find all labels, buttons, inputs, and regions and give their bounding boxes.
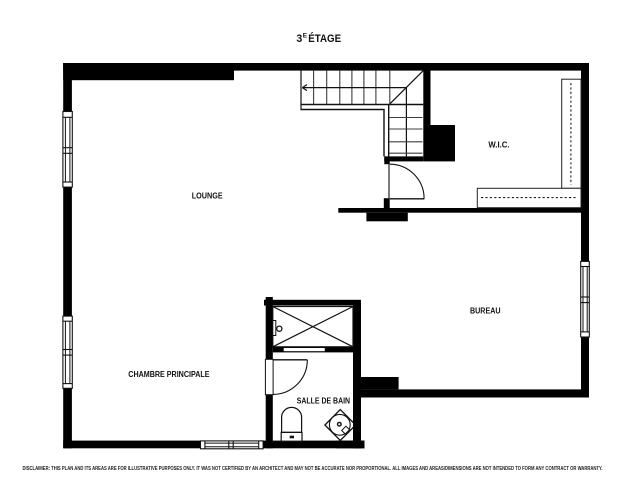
svg-text:W.I.C.: W.I.C.: [488, 141, 509, 150]
svg-text:LOUNGE: LOUNGE: [192, 191, 224, 200]
svg-text:3: 3: [296, 33, 302, 45]
svg-text:ÉTAGE: ÉTAGE: [308, 32, 341, 45]
svg-text:BUREAU: BUREAU: [470, 306, 501, 315]
svg-text:DISCLAIMER: THIS PLAN AND ITS: DISCLAIMER: THIS PLAN AND ITS AREAS ARE …: [23, 466, 603, 472]
svg-text:CHAMBRE PRINCIPALE: CHAMBRE PRINCIPALE: [128, 370, 210, 379]
svg-text:E: E: [303, 32, 308, 39]
svg-text:SALLE DE BAIN: SALLE DE BAIN: [297, 396, 351, 405]
